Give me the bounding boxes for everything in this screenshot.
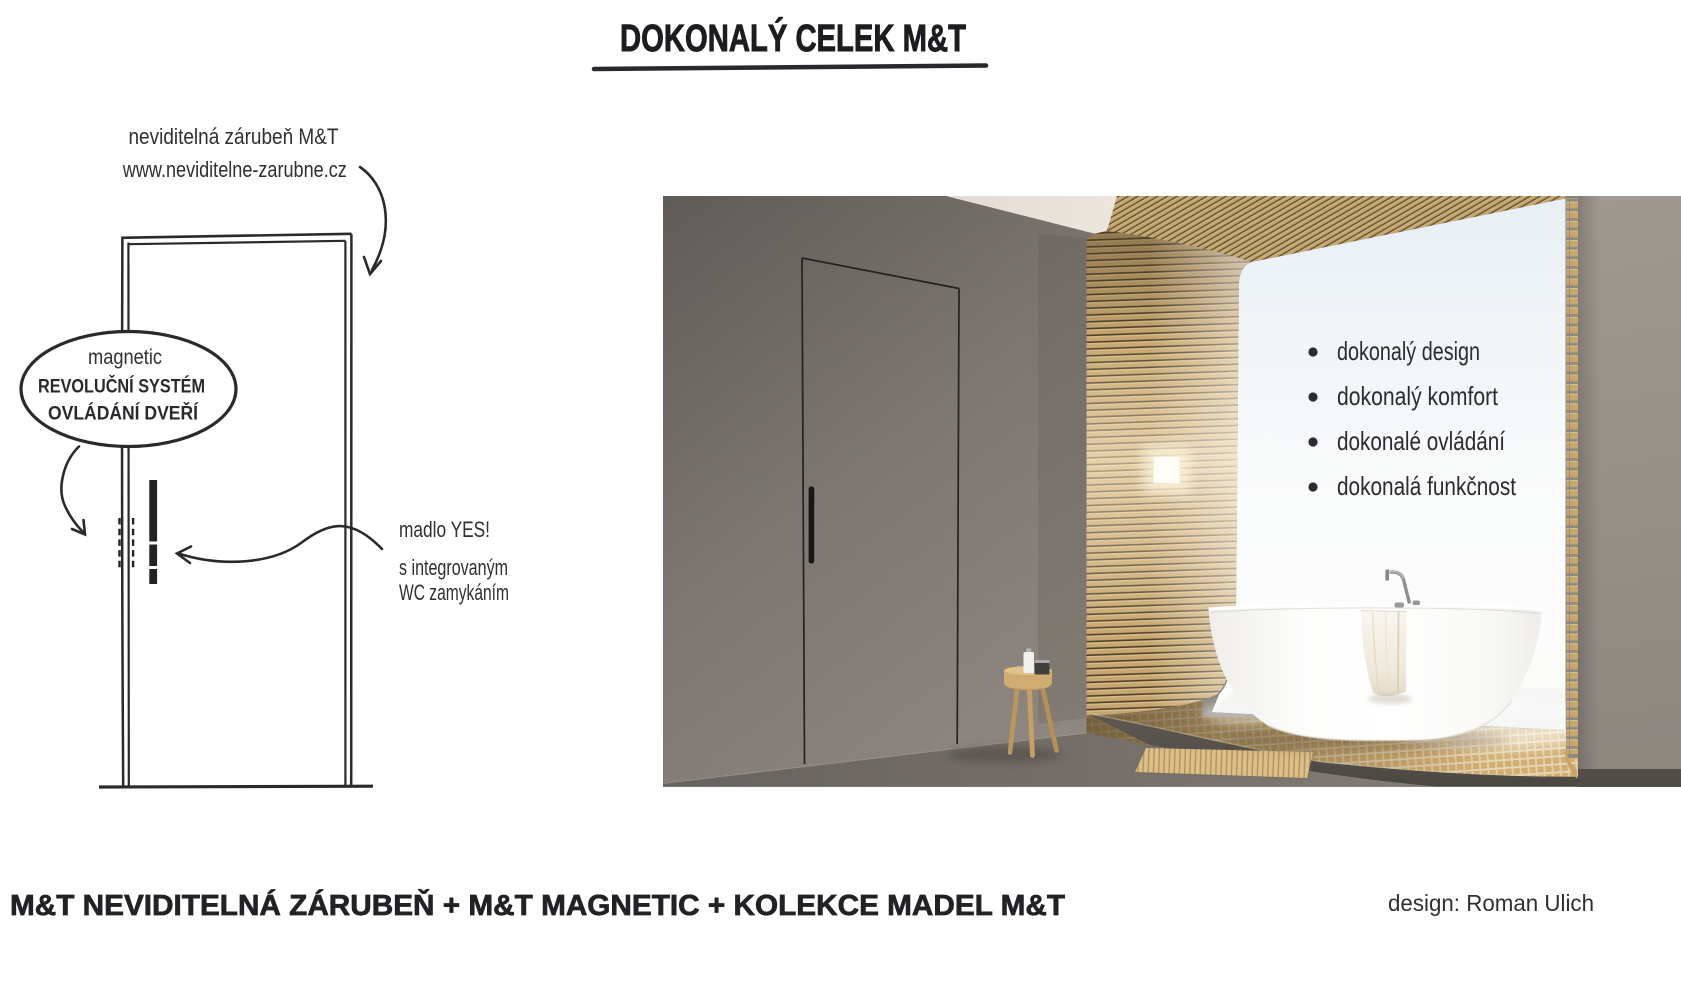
svg-text:REVOLUČNÍ SYSTÉM: REVOLUČNÍ SYSTÉM (38, 374, 205, 398)
svg-text:OVLÁDÁNÍ DVEŘÍ: OVLÁDÁNÍ DVEŘÍ (48, 401, 199, 425)
svg-text:DOKONALÝ CELEK M&T: DOKONALÝ CELEK M&T (620, 16, 966, 60)
svg-text:dokonalý komfort: dokonalý komfort (1337, 381, 1499, 411)
svg-text:M&T NEVIDITELNÁ ZÁRUBEŇ + M&T: M&T NEVIDITELNÁ ZÁRUBEŇ + M&T MAGNETIC +… (10, 888, 1065, 922)
svg-text:www.neviditelne-zarubne.cz: www.neviditelne-zarubne.cz (122, 157, 347, 182)
svg-text:design: Roman Ulich: design: Roman Ulich (1388, 890, 1594, 916)
svg-text:dokonalý design: dokonalý design (1337, 336, 1480, 366)
svg-text:dokonalá funkčnost: dokonalá funkčnost (1337, 471, 1517, 501)
svg-text:WC zamykáním: WC zamykáním (399, 580, 509, 605)
svg-text:dokonalé ovládání: dokonalé ovládání (1337, 426, 1506, 456)
svg-text:neviditelná zárubeň M&T: neviditelná zárubeň M&T (129, 124, 339, 149)
svg-text:s integrovaným: s integrovaným (399, 555, 508, 580)
svg-text:madlo YES!: madlo YES! (399, 517, 490, 542)
svg-text:magnetic: magnetic (88, 346, 162, 369)
